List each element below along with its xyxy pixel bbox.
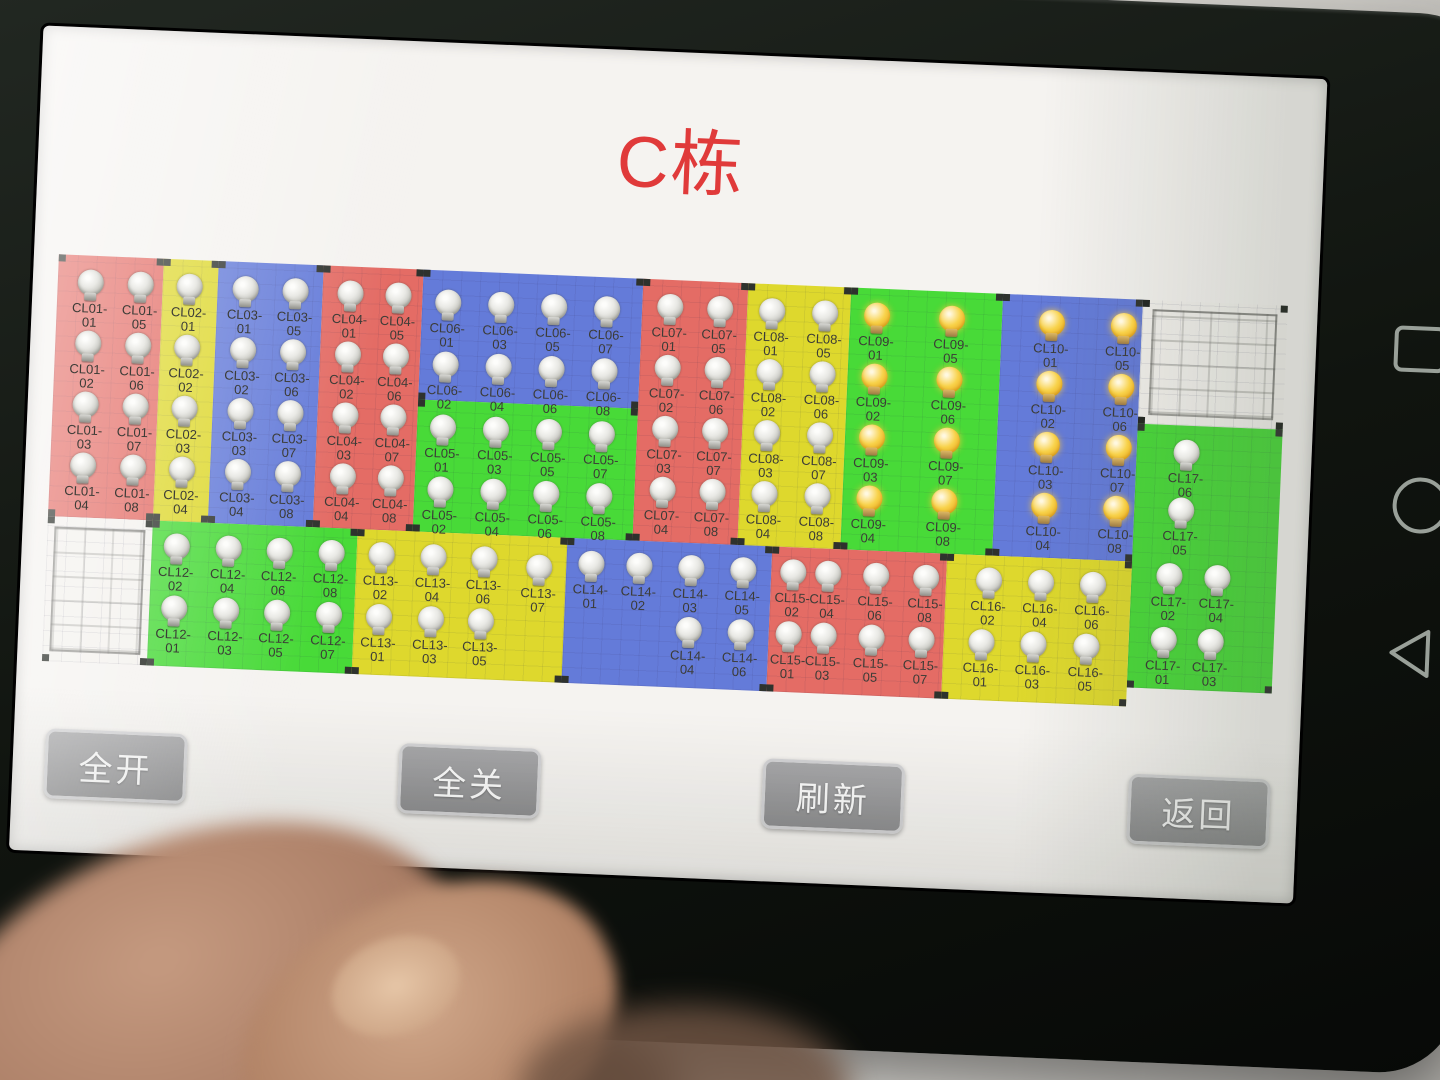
light-CL09-07[interactable]: CL09-07 [915,426,977,488]
bulb-icon [916,426,977,459]
light-label: CL09-03 [840,455,901,485]
light-CL09-06[interactable]: CL09-06 [918,365,980,427]
light-CL03-06[interactable]: CL03-06 [261,338,323,400]
light-label: CL06-05 [522,325,583,355]
light-label: CL09-05 [920,336,981,366]
recents-square-icon[interactable] [1395,327,1440,371]
light-CL09-04[interactable]: CL09-04 [838,484,900,546]
bulb-icon [1091,373,1152,406]
bulb-icon [471,291,532,324]
bulb-icon [1056,632,1117,665]
bulb-icon [1156,438,1217,471]
bulb-icon [1093,312,1154,345]
bulb-icon [412,413,473,446]
light-label: CL06-03 [469,323,530,353]
light-CL10-08[interactable]: CL10-08 [1084,495,1146,557]
light-CL09-02[interactable]: CL09-02 [843,362,905,424]
bulb-icon [1086,495,1147,528]
light-label: CL13-06 [453,577,514,607]
bulb-icon [1016,431,1077,464]
bulb-icon [260,399,321,432]
light-CL17-05[interactable]: CL17-05 [1149,496,1211,558]
back-triangle-icon[interactable] [1391,630,1429,675]
light-label: CL03-05 [264,309,325,339]
light-label: CL05-06 [514,512,575,542]
bulb-icon [450,607,511,640]
bulb-icon [576,295,637,328]
bulb-icon [1014,492,1075,525]
light-label: CL06-06 [520,387,581,417]
light-label: CL09-08 [912,519,973,549]
light-label: CL05-01 [411,445,472,475]
light-label: CL09-01 [845,333,906,363]
bulb-icon [1003,630,1064,663]
light-label: CL16-03 [1002,662,1063,692]
light-CL15-08[interactable]: CL15-08 [894,564,956,626]
screen: C栋 CL01-01CL01-05CL01-02CL01-06CL01-03CL… [9,25,1327,903]
light-label: CL16-06 [1061,603,1122,633]
light-CL10-06[interactable]: CL10-06 [1089,373,1151,435]
bulb-icon [418,288,479,321]
light-label: CL06-02 [414,382,475,412]
light-label: CL10-03 [1015,463,1076,493]
bulb-icon [914,487,975,520]
bulb-icon [521,355,582,388]
light-label: CL06-04 [467,385,528,415]
bulb-icon [574,357,635,390]
bulb-icon [921,305,982,338]
light-label: CL05-04 [461,509,522,539]
light-label: CL06-07 [575,327,636,357]
light-CL16-06[interactable]: CL16-06 [1061,571,1123,633]
bulb-icon [465,416,526,449]
light-CL03-05[interactable]: CL03-05 [264,277,326,339]
light-CL02-04[interactable]: CL02-04 [150,455,212,517]
light-CL02-01[interactable]: CL02-01 [158,273,220,335]
bulb-icon [415,350,476,383]
light-label: CL03-06 [261,370,322,400]
bulb-icon [919,365,980,398]
bulb-icon [156,334,217,367]
bulb-icon [523,293,584,326]
light-label: CL06-01 [416,320,477,350]
home-circle-icon[interactable] [1394,478,1440,532]
bulb-icon [257,460,318,493]
bulb-icon [891,626,952,659]
bulb-icon [159,273,220,306]
bulb-icon [1019,370,1080,403]
light-label: CL09-02 [843,394,904,424]
light-CL06-08[interactable]: CL06-08 [573,357,635,419]
bulb-icon [265,277,326,310]
bulb-icon [1062,571,1123,604]
bulb-icon [1088,434,1149,467]
light-CL13-06[interactable]: CL13-06 [453,545,515,607]
light-label: CL08-01 [740,329,801,359]
lights-layer: CL01-01CL01-05CL01-02CL01-06CL01-03CL01-… [9,25,1327,903]
light-CL09-03[interactable]: CL09-03 [840,423,902,485]
light-CL10-04[interactable]: CL10-04 [1012,492,1074,554]
bulb-icon [844,362,905,395]
light-label: CL15-07 [890,657,951,687]
light-CL02-02[interactable]: CL02-02 [155,334,217,396]
photo-scene: C栋 CL01-01CL01-05CL01-02CL01-06CL01-03CL… [0,0,1440,1080]
bulb-icon [1021,309,1082,342]
light-label: CL02-01 [158,305,219,335]
bulb-icon [151,455,212,488]
light-label: CL09-07 [915,458,976,488]
bulb-icon [736,419,797,452]
light-CL03-07[interactable]: CL03-07 [259,399,321,461]
light-CL17-06[interactable]: CL17-06 [1155,438,1217,500]
bulb-icon [571,420,632,453]
bulb-icon [1180,628,1241,661]
light-CL10-05[interactable]: CL10-05 [1092,312,1154,374]
light-label: CL05-07 [570,452,631,482]
bulb-icon [262,338,323,371]
light-CL17-04[interactable]: CL17-04 [1185,564,1247,626]
light-CL10-01[interactable]: CL10-01 [1020,309,1082,371]
light-CL03-08[interactable]: CL03-08 [256,460,318,522]
light-label: CL08-03 [735,451,796,481]
light-label: CL10-07 [1087,466,1148,496]
light-label: CL10-02 [1017,402,1078,432]
light-label: CL05-02 [409,507,470,537]
light-label: CL13-05 [449,639,510,669]
light-label: CL10-01 [1020,341,1081,371]
light-CL10-02[interactable]: CL10-02 [1017,370,1079,432]
light-CL17-03[interactable]: CL17-03 [1179,628,1241,690]
bulb-icon [454,545,515,578]
light-label: CL06-08 [573,389,634,419]
light-CL15-07[interactable]: CL15-07 [890,626,952,688]
light-label: CL03-08 [256,492,317,522]
light-label: CL17-05 [1149,528,1210,558]
light-label: CL10-04 [1012,524,1073,554]
light-CL09-05[interactable]: CL09-05 [920,305,982,367]
light-label: CL02-04 [150,487,211,517]
light-label: CL05-03 [464,447,525,477]
bulb-icon [741,297,802,330]
bulb-icon [739,358,800,391]
light-label: CL09-06 [918,397,979,427]
bulb-icon [154,394,215,427]
bulb-icon [569,482,630,515]
bulb-icon [518,418,579,451]
light-label: CL15-08 [894,596,955,626]
bulb-icon [410,475,471,508]
light-label: CL17-03 [1179,660,1240,690]
light-CL05-07[interactable]: CL05-07 [570,420,632,482]
bulb-icon [839,484,900,517]
bulb-icon [1187,564,1248,597]
light-CL02-03[interactable]: CL02-03 [153,394,215,456]
light-label: CL03-07 [259,431,320,461]
light-label: CL05-08 [567,514,628,544]
light-CL05-08[interactable]: CL05-08 [567,482,629,544]
light-label: CL10-06 [1089,405,1150,435]
light-label: CL10-05 [1092,344,1153,374]
light-CL06-07[interactable]: CL06-07 [575,295,637,357]
light-label: CL05-05 [517,450,578,480]
light-label: CL10-08 [1084,527,1145,557]
light-label: CL02-02 [155,365,216,395]
light-CL09-01[interactable]: CL09-01 [845,301,907,363]
bulb-icon [841,423,902,456]
light-CL10-03[interactable]: CL10-03 [1015,431,1077,493]
bulb-icon [734,480,795,513]
bulb-icon [895,564,956,597]
bulb-icon [846,301,907,334]
android-nav-bar [1369,314,1440,707]
light-label: CL08-02 [738,390,799,420]
light-label: CL17-04 [1185,596,1246,626]
bulb-icon [468,353,529,386]
light-label: CL16-05 [1054,664,1115,694]
light-CL10-07[interactable]: CL10-07 [1087,434,1149,496]
light-CL16-05[interactable]: CL16-05 [1054,632,1116,694]
light-CL09-08[interactable]: CL09-08 [912,487,974,549]
light-label: CL08-04 [733,512,794,542]
bulb-icon [516,480,577,513]
light-label: CL02-03 [153,426,214,456]
light-label: CL09-04 [838,516,899,546]
bulb-icon [463,477,524,510]
light-CL13-05[interactable]: CL13-05 [449,607,511,669]
bulb-icon [1150,496,1211,529]
